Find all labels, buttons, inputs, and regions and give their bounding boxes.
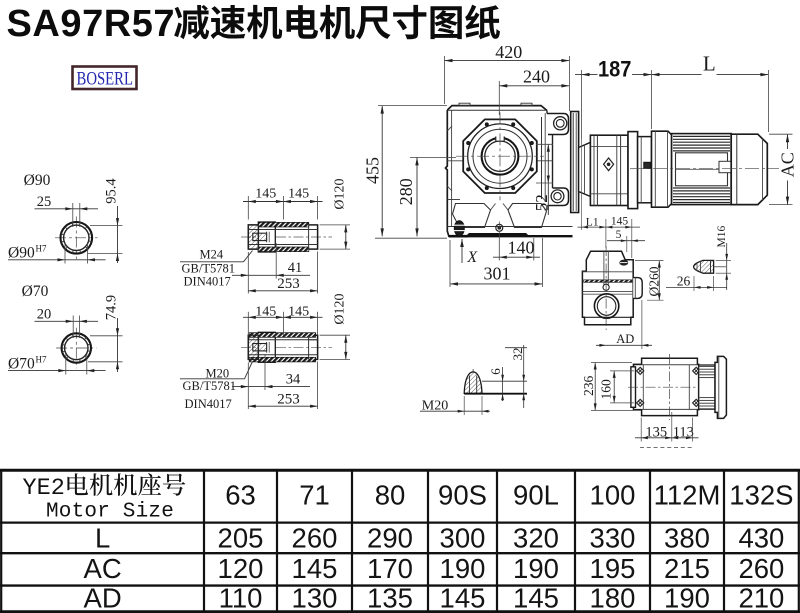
svg-text:145: 145 bbox=[513, 583, 559, 613]
svg-text:100: 100 bbox=[590, 480, 636, 511]
svg-text:YE2: YE2 bbox=[23, 475, 65, 502]
svg-text:X: X bbox=[466, 249, 478, 266]
svg-text:M16: M16 bbox=[716, 225, 728, 247]
svg-text:190: 190 bbox=[513, 553, 559, 584]
svg-text:41: 41 bbox=[288, 260, 303, 276]
svg-text:AC: AC bbox=[778, 152, 798, 177]
svg-text:240: 240 bbox=[523, 67, 550, 87]
svg-text:112M: 112M bbox=[654, 480, 721, 511]
svg-text:25: 25 bbox=[37, 194, 52, 210]
svg-text:253: 253 bbox=[277, 391, 300, 407]
svg-text:455: 455 bbox=[363, 157, 383, 184]
svg-text:L: L bbox=[703, 52, 716, 76]
svg-text:M24: M24 bbox=[200, 247, 224, 261]
svg-text:DIN4017: DIN4017 bbox=[185, 397, 232, 411]
svg-text:430: 430 bbox=[738, 522, 784, 553]
svg-text:290: 290 bbox=[367, 522, 413, 553]
svg-text:80: 80 bbox=[375, 480, 406, 511]
svg-text:20: 20 bbox=[37, 307, 52, 323]
svg-text:130: 130 bbox=[292, 583, 338, 613]
svg-text:215: 215 bbox=[664, 553, 710, 584]
svg-text:AD: AD bbox=[616, 332, 634, 346]
svg-text:260: 260 bbox=[738, 553, 784, 584]
svg-text:Ø90: Ø90 bbox=[8, 245, 35, 262]
svg-text:71: 71 bbox=[299, 480, 330, 511]
svg-text:236: 236 bbox=[581, 376, 596, 397]
svg-text:132S: 132S bbox=[729, 480, 793, 511]
svg-text:5: 5 bbox=[616, 229, 622, 241]
svg-text:H7: H7 bbox=[36, 355, 47, 365]
svg-text:Motor Size: Motor Size bbox=[46, 500, 174, 523]
svg-text:253: 253 bbox=[277, 276, 300, 292]
svg-text:180: 180 bbox=[590, 583, 636, 613]
svg-text:300: 300 bbox=[440, 522, 486, 553]
svg-text:AC: AC bbox=[83, 553, 121, 584]
svg-text:95.4: 95.4 bbox=[104, 178, 120, 204]
svg-text:280: 280 bbox=[396, 178, 416, 205]
svg-text:145: 145 bbox=[440, 583, 486, 613]
svg-text:135: 135 bbox=[367, 583, 413, 613]
svg-text:120: 120 bbox=[218, 553, 264, 584]
svg-text:SA97R57: SA97R57 bbox=[7, 3, 176, 45]
svg-text:BOSERL: BOSERL bbox=[77, 68, 134, 89]
svg-text:74.9: 74.9 bbox=[104, 295, 120, 320]
svg-text:Ø70: Ø70 bbox=[22, 283, 49, 300]
svg-text:320: 320 bbox=[513, 522, 559, 553]
svg-text:260: 260 bbox=[292, 522, 338, 553]
svg-text:380: 380 bbox=[664, 522, 710, 553]
svg-text:110: 110 bbox=[219, 583, 263, 613]
svg-text:Ø120: Ø120 bbox=[333, 178, 348, 209]
svg-text:34: 34 bbox=[286, 372, 301, 388]
svg-text:170: 170 bbox=[367, 553, 413, 584]
svg-text:H7: H7 bbox=[36, 244, 47, 254]
svg-text:140: 140 bbox=[508, 238, 535, 258]
svg-text:145: 145 bbox=[288, 187, 309, 202]
svg-text:145: 145 bbox=[611, 216, 629, 228]
svg-text:330: 330 bbox=[590, 522, 636, 553]
svg-text:90S: 90S bbox=[438, 480, 487, 511]
svg-text:190: 190 bbox=[664, 583, 710, 613]
svg-text:195: 195 bbox=[590, 553, 636, 584]
svg-text:160: 160 bbox=[599, 379, 614, 400]
svg-text:63: 63 bbox=[225, 480, 256, 511]
svg-text:Ø70: Ø70 bbox=[8, 356, 35, 373]
svg-text:90L: 90L bbox=[513, 480, 559, 511]
svg-text:187: 187 bbox=[598, 57, 632, 82]
svg-text:145: 145 bbox=[255, 187, 276, 202]
svg-text:205: 205 bbox=[218, 522, 264, 553]
svg-text:32: 32 bbox=[510, 348, 525, 361]
svg-text:420: 420 bbox=[495, 42, 522, 62]
svg-text:210: 210 bbox=[738, 583, 784, 613]
svg-text:AD: AD bbox=[83, 583, 121, 613]
svg-text:190: 190 bbox=[440, 553, 486, 584]
svg-text:Ø90: Ø90 bbox=[24, 172, 51, 189]
svg-text:26: 26 bbox=[677, 273, 691, 288]
svg-text:DIN4017: DIN4017 bbox=[184, 274, 231, 288]
svg-text:145: 145 bbox=[292, 553, 338, 584]
svg-text:GB/T5781: GB/T5781 bbox=[183, 379, 236, 393]
svg-text:Ø120: Ø120 bbox=[333, 293, 348, 324]
svg-text:301: 301 bbox=[484, 264, 511, 284]
svg-text:L: L bbox=[95, 522, 110, 553]
svg-text:6: 6 bbox=[488, 368, 503, 375]
